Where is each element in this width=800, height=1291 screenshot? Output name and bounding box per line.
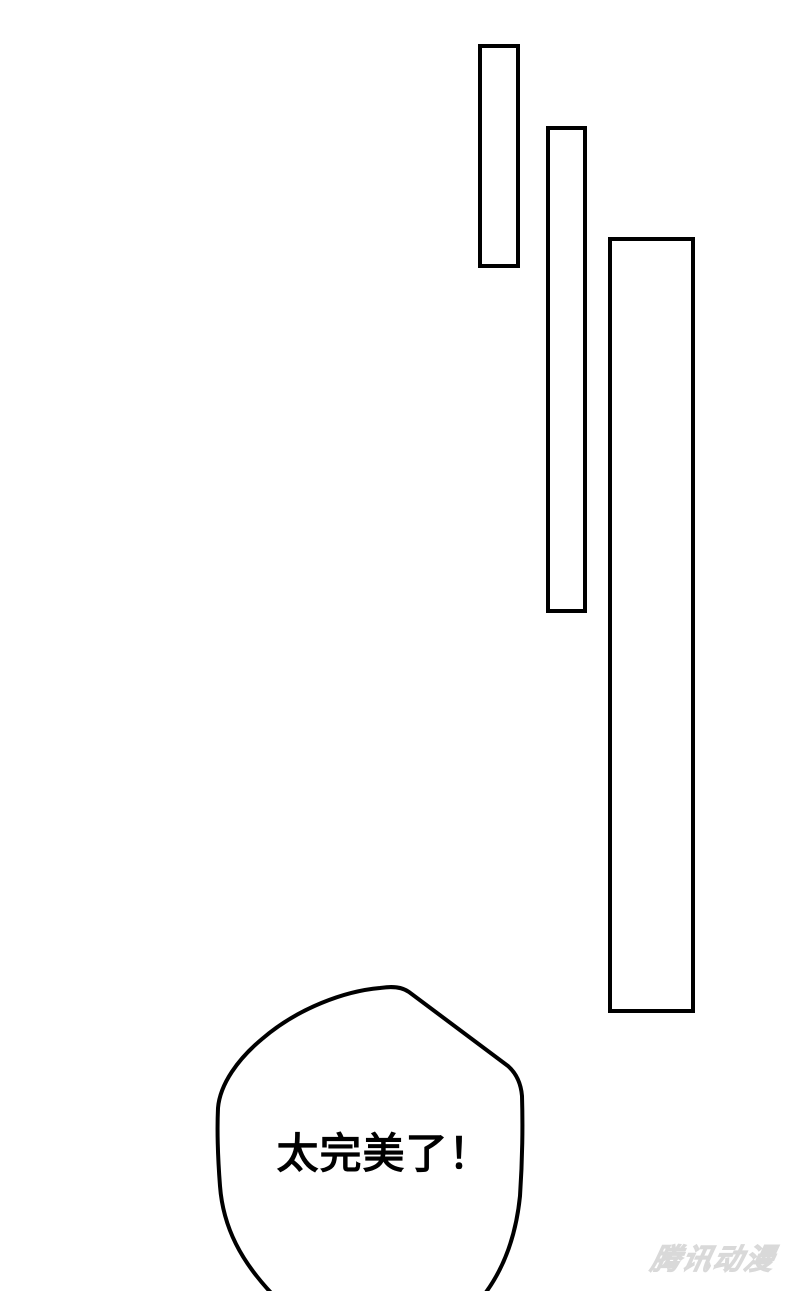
- speech-bubble-text: 太完美了！: [276, 1120, 491, 1181]
- watermark-tencent-comics: 腾讯动漫: [648, 1236, 793, 1278]
- speech-bubble: [0, 0, 800, 1291]
- comic-page: 太完美了！ 腾讯动漫: [0, 0, 800, 1291]
